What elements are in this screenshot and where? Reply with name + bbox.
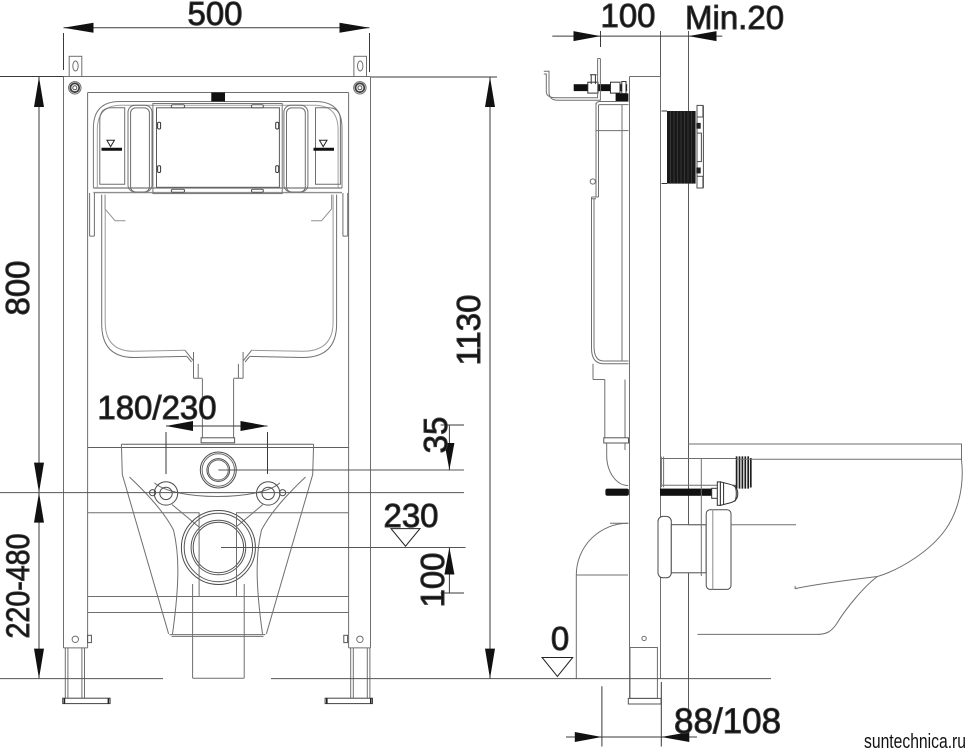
svg-text:800: 800 [0, 260, 36, 315]
svg-text:100: 100 [600, 0, 655, 34]
svg-text:220-480: 220-480 [0, 534, 36, 639]
svg-text:suntechnica.ru: suntechnica.ru [864, 731, 966, 753]
svg-text:0: 0 [551, 620, 569, 657]
svg-text:100: 100 [414, 552, 451, 607]
svg-text:180/230: 180/230 [97, 389, 216, 426]
svg-text:88/108: 88/108 [674, 702, 781, 741]
svg-text:Min.20: Min.20 [685, 0, 784, 36]
svg-text:1130: 1130 [450, 295, 487, 366]
svg-text:500: 500 [187, 0, 242, 32]
svg-text:35: 35 [417, 417, 454, 454]
